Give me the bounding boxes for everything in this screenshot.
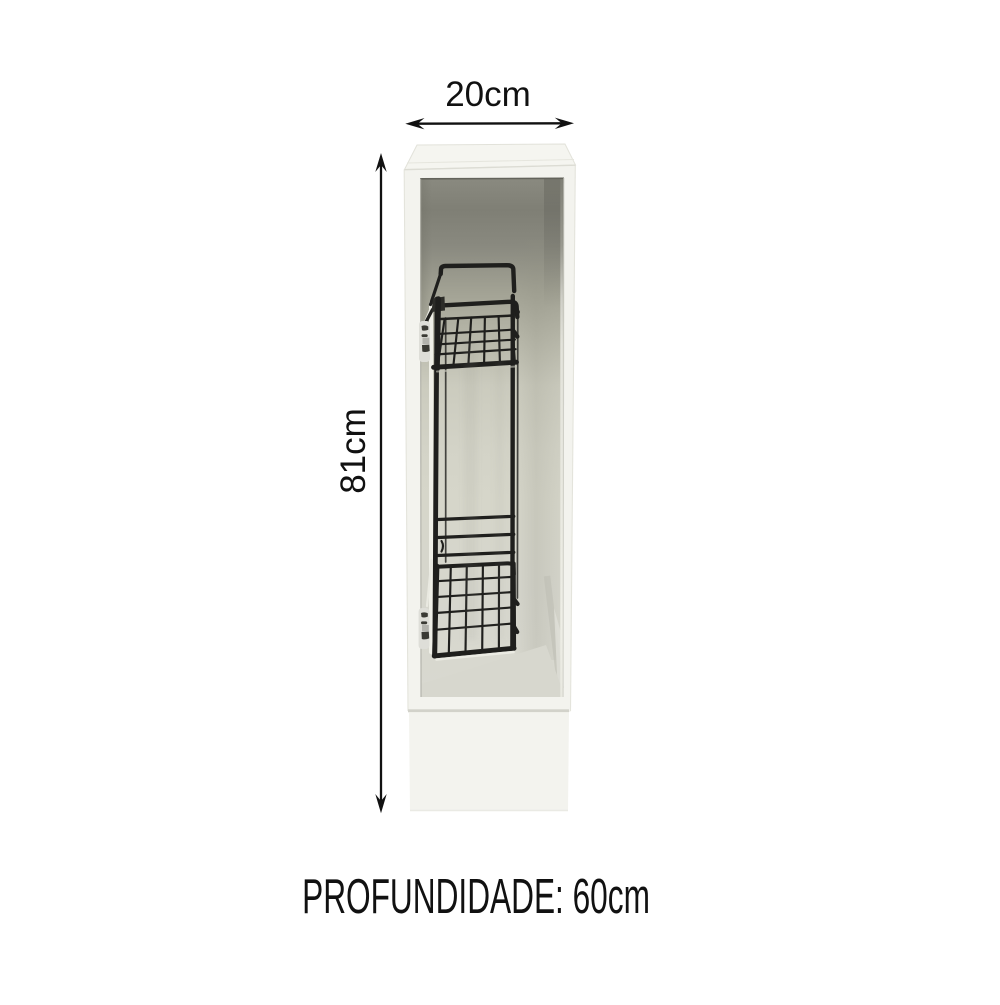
svg-text:81cm: 81cm bbox=[334, 408, 373, 494]
svg-text:20cm: 20cm bbox=[445, 75, 531, 114]
svg-text:PROFUNDIDADE: 60cm: PROFUNDIDADE: 60cm bbox=[302, 868, 650, 924]
